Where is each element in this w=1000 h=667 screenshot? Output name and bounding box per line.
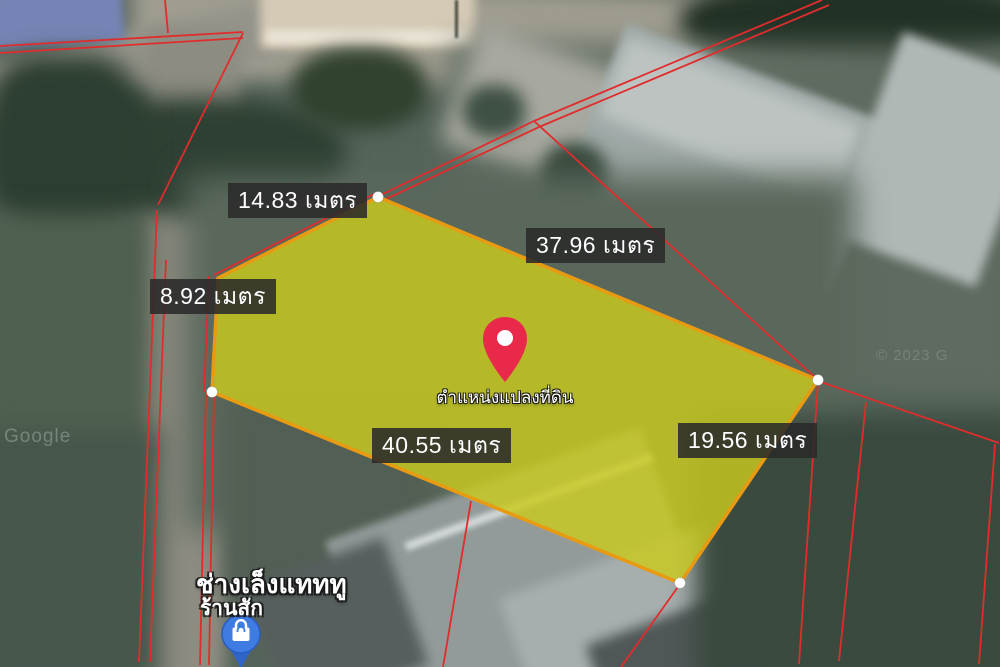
measurement-label-bottom-right: 19.56 เมตร: [678, 423, 817, 458]
place-subtitle: ร้านสัก: [200, 592, 263, 625]
cadastral-line: [818, 381, 999, 443]
satellite-map[interactable]: Google © 2023 G ตำแหน่งแปลงที่ดิน 14.83 …: [0, 0, 1000, 667]
vertex-dot: [207, 387, 218, 398]
vertex-dot: [813, 375, 824, 386]
parcel-caption: ตำแหน่งแปลงที่ดิน: [415, 384, 595, 411]
cadastral-line: [839, 402, 866, 661]
cadastral-line: [379, 121, 534, 196]
measurement-label-top-right: 37.96 เมตร: [526, 228, 665, 263]
cadastral-line: [158, 33, 243, 205]
cadastral-line: [382, 127, 539, 201]
measurement-label-left: 8.92 เมตร: [150, 279, 276, 314]
location-pin-icon[interactable]: [482, 316, 528, 384]
cadastral-line: [534, 0, 822, 121]
measurement-label-bottom-left: 40.55 เมตร: [372, 428, 511, 463]
cadastral-line: [979, 444, 995, 664]
measurement-label-top-left: 14.83 เมตร: [228, 183, 367, 218]
cadastral-line: [443, 501, 471, 667]
cadastral-line: [0, 38, 243, 53]
cadastral-line: [621, 584, 680, 667]
cadastral-line: [139, 210, 157, 662]
cadastral-line: [539, 5, 829, 127]
cadastral-line: [165, 0, 168, 33]
cadastral-line: [0, 32, 243, 46]
vertex-dot: [373, 192, 384, 203]
vertex-dot: [675, 578, 686, 589]
